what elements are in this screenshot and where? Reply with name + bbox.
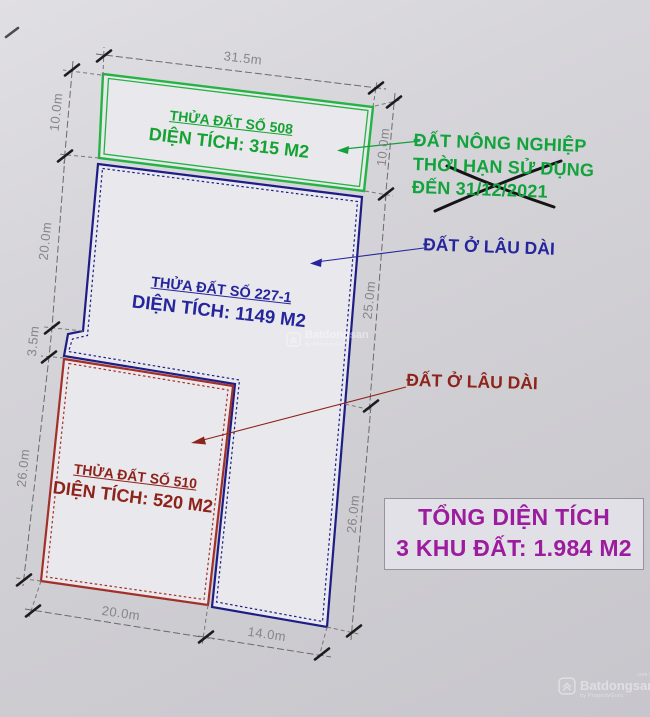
watermark-center: Batdongsan by PropertyGuru xyxy=(286,330,369,348)
dim-left-3-5: 3.5m xyxy=(24,325,42,357)
total-area-line2: 3 KHU ĐẤT: 1.984 M2 xyxy=(385,533,643,564)
annotation-residential-red: ĐẤT Ở LÂU DÀI xyxy=(406,370,538,394)
watermark-brand: Batdongsan xyxy=(305,330,369,341)
diagram-linework xyxy=(0,0,650,717)
total-area-box: TỔNG DIỆN TÍCH 3 KHU ĐẤT: 1.984 M2 xyxy=(384,498,644,570)
watermark-byline: by PropertyGuru xyxy=(305,343,369,349)
brand-logo-icon xyxy=(286,332,301,347)
watermark-brand: Batdongsan xyxy=(580,679,650,692)
annotation-agriculture: ĐẤT NÔNG NGHIỆP THỜI HẠN SỬ DỤNG ĐẾN 31/… xyxy=(412,129,624,207)
watermark-byline: by PropertyGuru xyxy=(580,694,650,700)
watermark-corner: com.vn Batdongsan by PropertyGuru xyxy=(558,673,650,699)
total-area-line1: TỔNG DIỆN TÍCH xyxy=(385,502,643,533)
brand-logo-icon xyxy=(558,677,576,695)
land-plot-diagram: 31.5m 10.0m 20.0m 3.5m 26.0m 10.0m 25.0m… xyxy=(0,0,650,717)
